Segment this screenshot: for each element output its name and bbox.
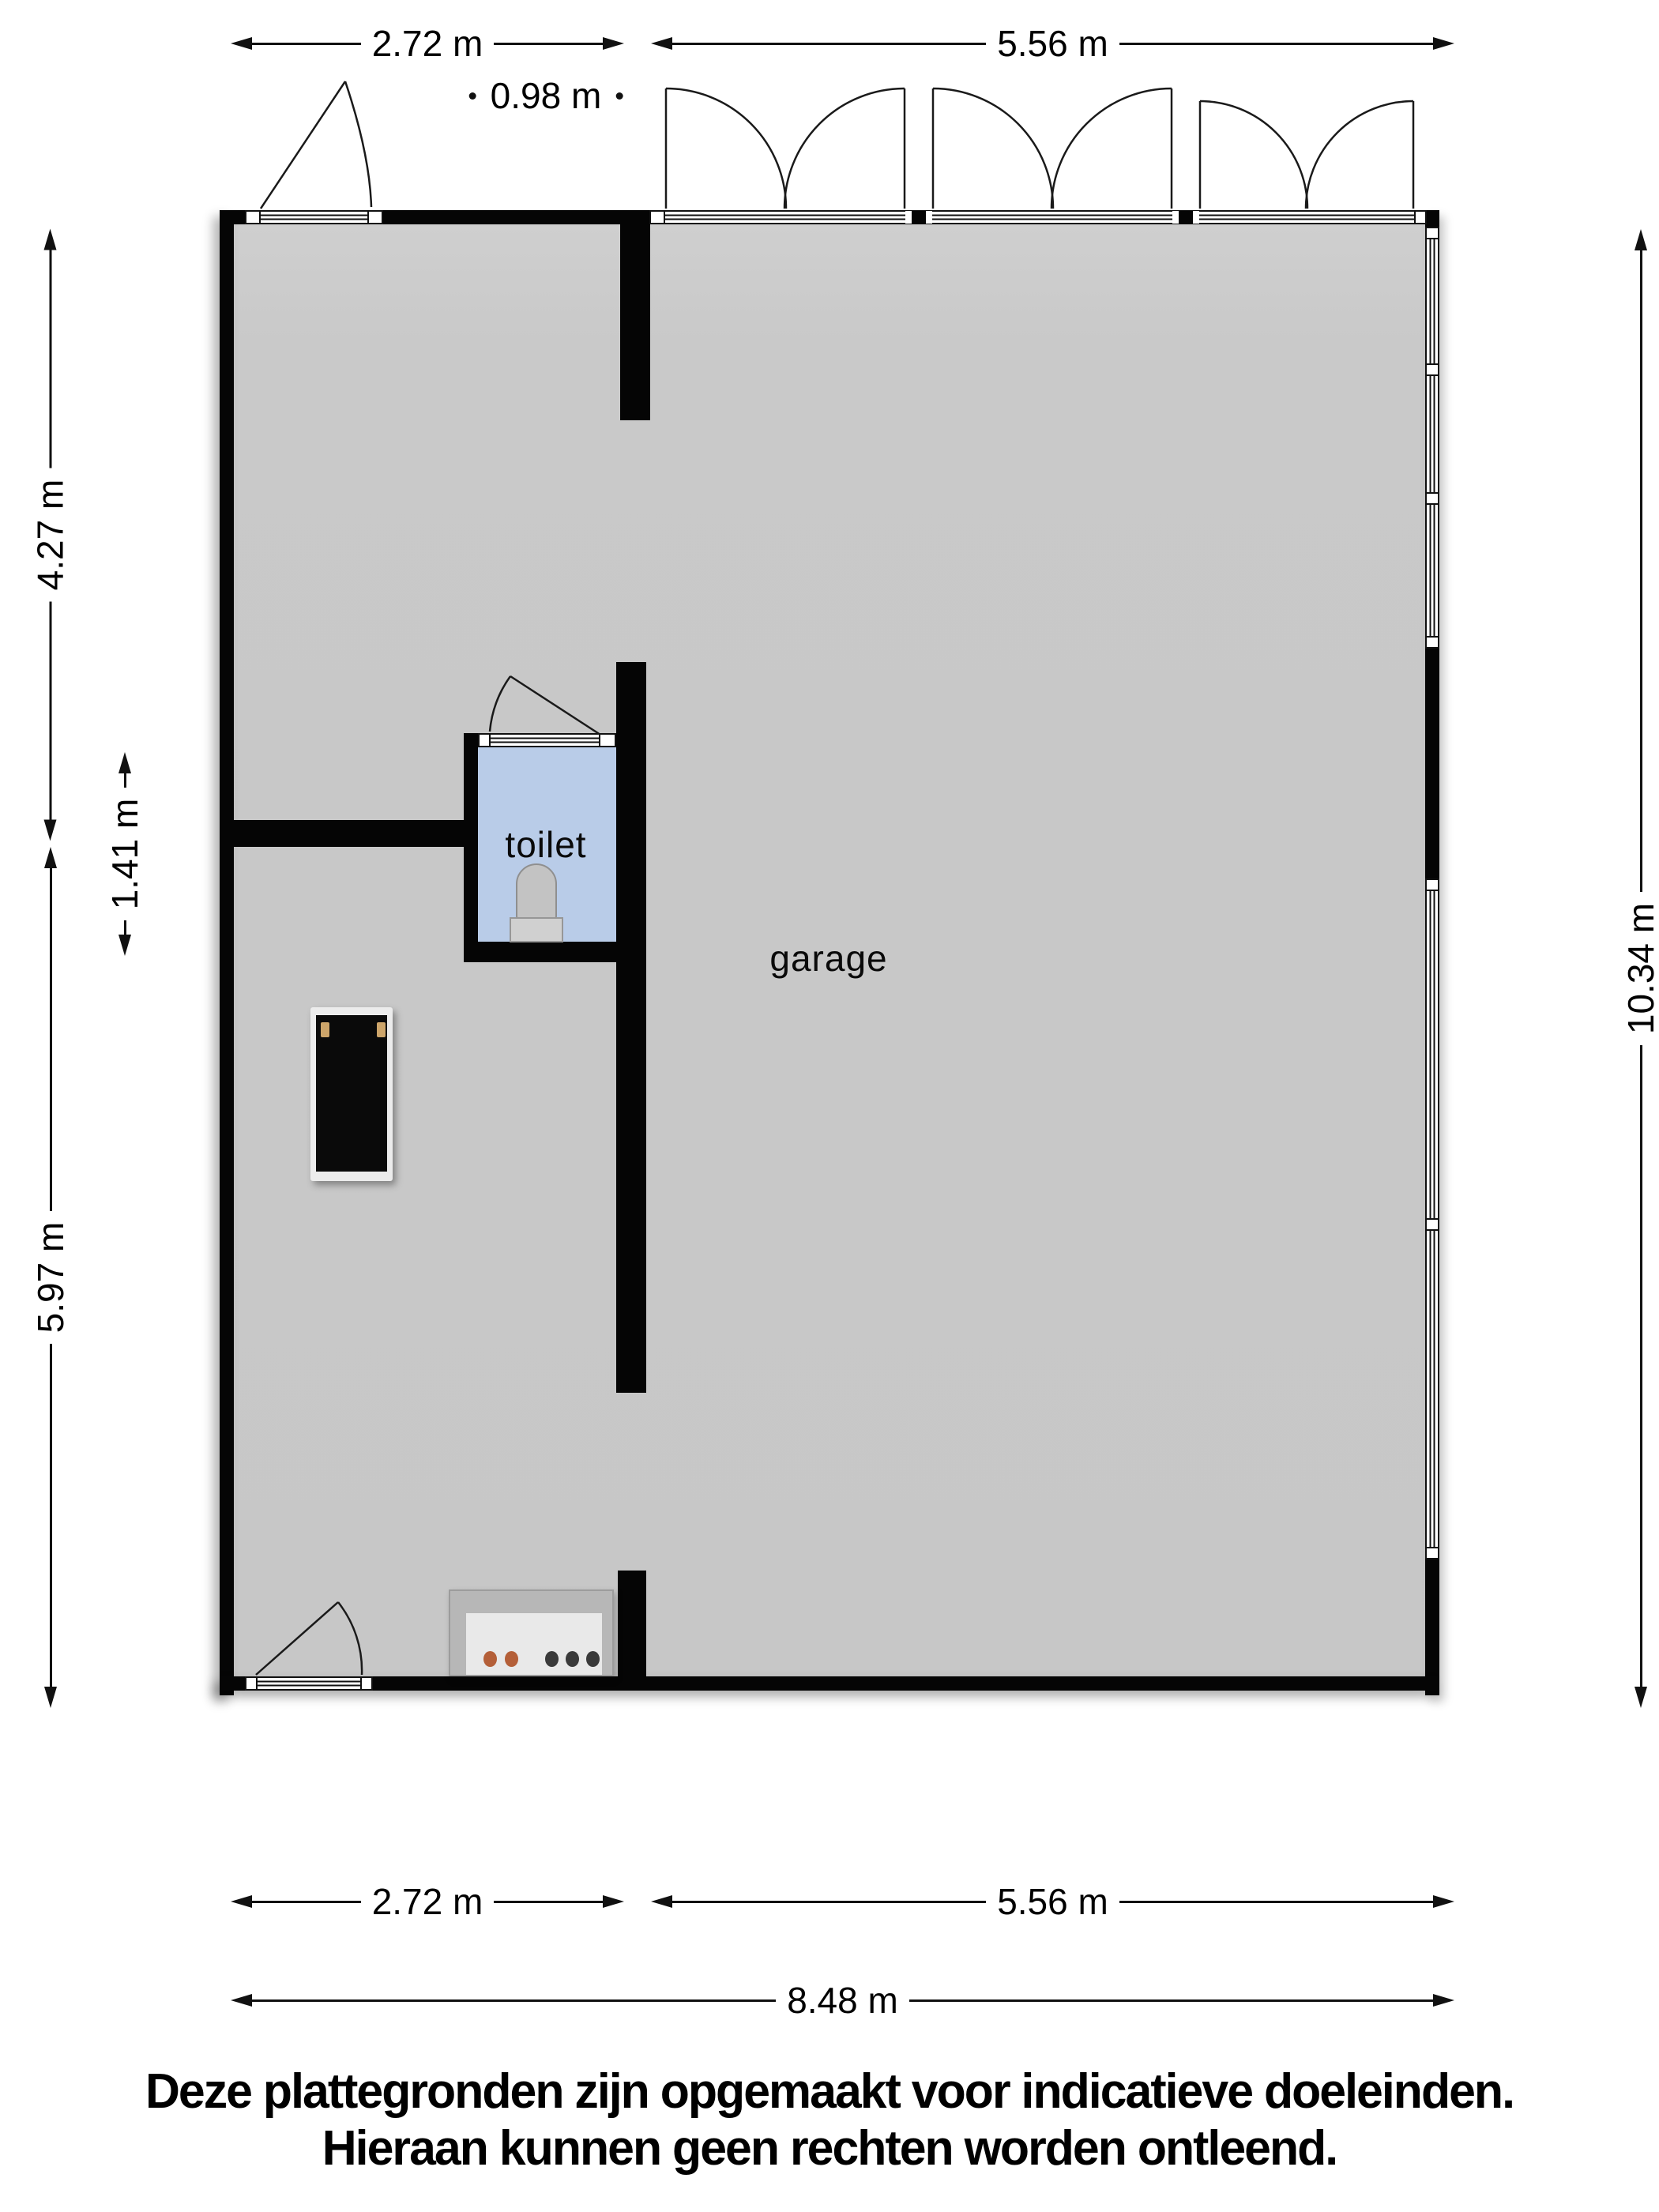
workbench (310, 1007, 393, 1181)
back-door (258, 1676, 360, 1691)
window-2 (1425, 376, 1439, 492)
toilet-bottom-wall (464, 942, 646, 962)
window-jamb (1425, 227, 1439, 239)
workbench-top (316, 1015, 387, 1172)
arrow-right-icon (1433, 1895, 1454, 1908)
arrow-down-icon (1635, 1687, 1647, 1708)
arrow-right-icon (603, 37, 624, 50)
workbench-handle (321, 1022, 329, 1037)
door-arc (1306, 101, 1413, 209)
arrow-left-icon (231, 1994, 252, 2007)
dot-icon (469, 92, 476, 100)
arrow-up-icon (118, 752, 131, 773)
arrow-right-icon (603, 1895, 624, 1908)
arrow-up-icon (1635, 229, 1647, 250)
door-jamb (1414, 210, 1427, 224)
dimension-top-left: 2.72 m (231, 24, 624, 62)
door-arc (666, 88, 786, 209)
left-wall (220, 210, 234, 1695)
disclaimer: Deze plattegronden zijn opgemaakt voor i… (17, 2063, 1642, 2177)
partition-wall-left (234, 820, 464, 847)
door-jamb (360, 1676, 373, 1691)
door-arc (1200, 101, 1307, 209)
door-arc (1051, 88, 1172, 209)
toilet-bowl (516, 863, 557, 920)
dimension-label: 2.72 m (361, 1880, 495, 1923)
window-3 (1425, 505, 1439, 636)
heater-knob-dark (545, 1651, 559, 1667)
disclaimer-line-1: Deze plattegronden zijn opgemaakt voor i… (17, 2063, 1642, 2120)
window-jamb (1425, 1547, 1439, 1559)
dimension-label: 2.72 m (361, 22, 495, 65)
door-jamb (649, 210, 665, 224)
dimension-bottom-total: 8.48 m (231, 1981, 1454, 2019)
heater-knob-dark (586, 1651, 600, 1667)
window-1 (1425, 239, 1439, 363)
door-jamb (599, 733, 616, 747)
garage-door-2 (932, 210, 1172, 224)
dimension-bottom-right: 5.56 m (651, 1883, 1454, 1920)
partition-wall-center (616, 662, 646, 1393)
dimension-label: 1.41 m (103, 788, 146, 921)
dimension-door-width: 0.98 m (469, 74, 623, 117)
room-label-garage: garage (769, 937, 887, 980)
disclaimer-line-2: Hieraan kunnen geen rechten worden ontle… (17, 2120, 1642, 2177)
arrow-down-icon (44, 1687, 57, 1708)
arrow-left-icon (651, 1895, 672, 1908)
dimension-right-total: 10.34 m (1622, 229, 1659, 1708)
arrow-right-icon (1433, 37, 1454, 50)
window-jamb (1425, 363, 1439, 376)
door-arc (345, 81, 371, 207)
heater-knob-orange (483, 1651, 497, 1667)
arrow-left-icon (231, 1895, 252, 1908)
dot-icon (615, 92, 623, 100)
window-jamb (1425, 636, 1439, 649)
floorplan-canvas: toilet garage 2.72 m 5.56 m 0.98 m 4.27 … (0, 0, 1659, 2212)
partition-wall-bottom-stub (618, 1571, 646, 1676)
toilet-tank (510, 917, 563, 942)
dimension-label: 5.97 m (29, 1211, 72, 1345)
toilet-door (491, 733, 599, 747)
door-jamb (245, 210, 261, 224)
workbench-handle (377, 1022, 386, 1037)
window-5 (1425, 1231, 1439, 1547)
dimension-left-lower: 5.97 m (32, 847, 70, 1708)
dimension-label: 5.56 m (986, 22, 1119, 65)
dimension-top-right: 5.56 m (651, 24, 1454, 62)
front-door (261, 210, 367, 224)
dimension-bottom-left: 2.72 m (231, 1883, 624, 1920)
dimension-label: 5.56 m (986, 1880, 1119, 1923)
arrow-right-icon (1433, 1994, 1454, 2007)
door-jamb (478, 733, 491, 747)
arrow-down-icon (44, 820, 57, 841)
dimension-label: 10.34 m (1619, 892, 1659, 1045)
door-mullion (905, 210, 932, 224)
arrow-down-icon (118, 935, 131, 956)
partition-wall-top (620, 224, 650, 420)
heater-knob-dark (566, 1651, 579, 1667)
door-arc (784, 88, 905, 209)
arrow-up-icon (44, 847, 57, 868)
window-jamb (1425, 492, 1439, 505)
garage-door-3 (1199, 210, 1414, 224)
window-jamb (1425, 878, 1439, 891)
door-leaf (261, 81, 345, 209)
arrow-up-icon (44, 228, 57, 250)
arrow-left-icon (231, 37, 252, 50)
room-label-toilet: toilet (505, 823, 586, 866)
window-4 (1425, 891, 1439, 1218)
heater-unit (449, 1589, 614, 1676)
door-jamb (245, 1676, 258, 1691)
toilet-left-wall (464, 733, 478, 962)
bottom-wall (220, 1676, 1439, 1691)
window-jamb (1425, 1218, 1439, 1231)
door-jamb (367, 210, 383, 224)
dimension-label: 4.27 m (29, 468, 72, 602)
dimension-left-middle: 1.41 m (106, 752, 144, 956)
heater-knob-orange (505, 1651, 518, 1667)
dimension-label: 0.98 m (476, 74, 616, 117)
door-mullion (1172, 210, 1199, 224)
arrow-left-icon (651, 37, 672, 50)
garage-door-1 (665, 210, 905, 224)
door-arc (933, 88, 1053, 209)
dimension-label: 8.48 m (776, 1979, 909, 2022)
dimension-left-upper: 4.27 m (32, 229, 70, 841)
